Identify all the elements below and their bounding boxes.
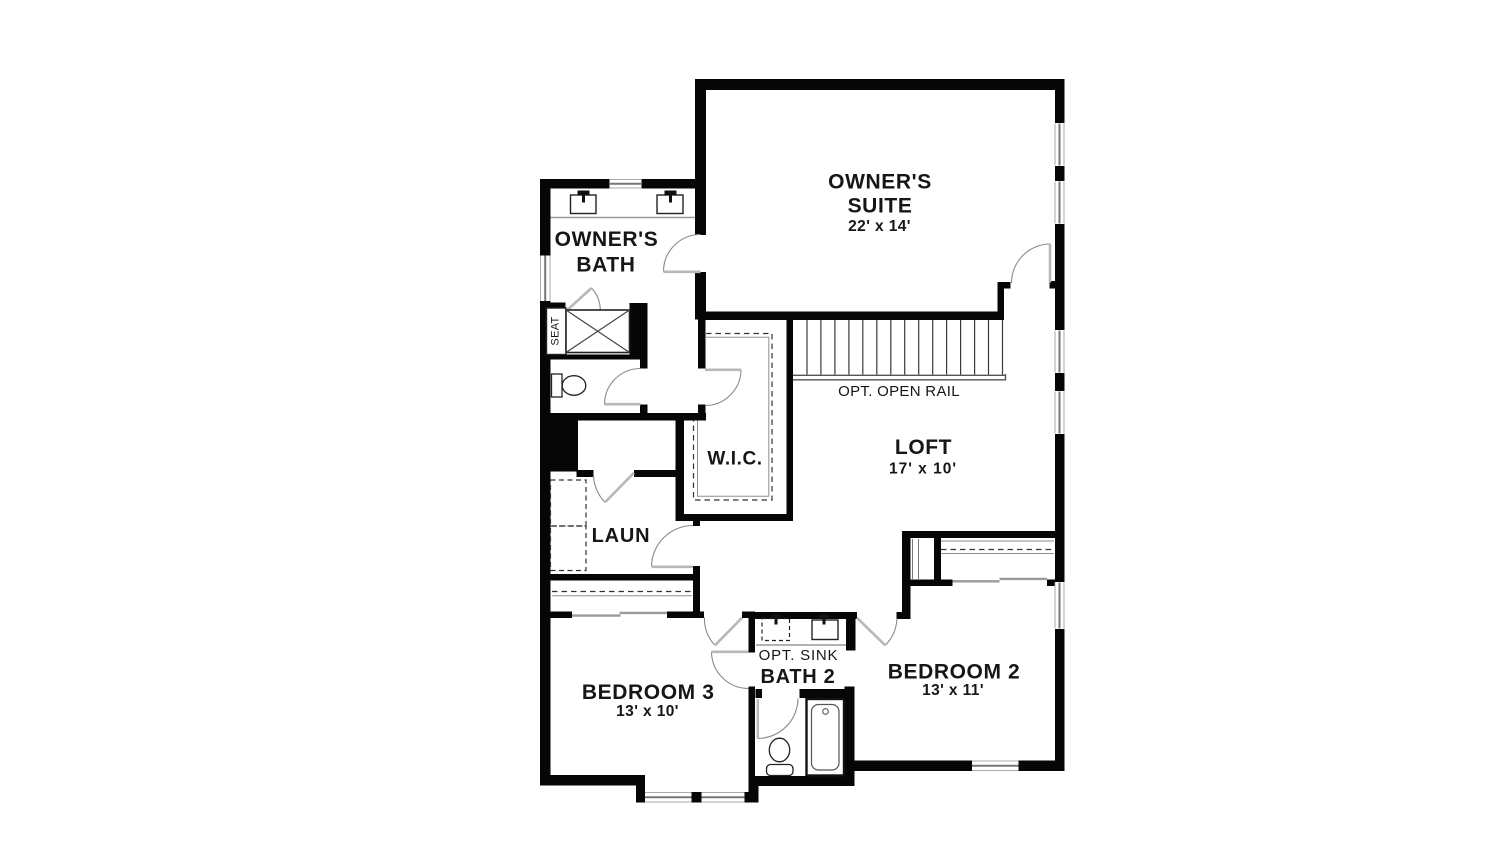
svg-text:OPT. SINK: OPT. SINK [759, 647, 839, 664]
svg-text:OPT. OPEN RAIL: OPT. OPEN RAIL [838, 383, 960, 400]
svg-text:17' x 10': 17' x 10' [889, 461, 957, 478]
svg-text:W.I.C.: W.I.C. [707, 449, 762, 470]
svg-text:13' x 11': 13' x 11' [922, 682, 984, 699]
svg-text:BATH 2: BATH 2 [761, 666, 836, 688]
svg-text:SEAT: SEAT [550, 316, 562, 345]
svg-text:LAUN: LAUN [592, 525, 651, 547]
svg-text:SUITE: SUITE [848, 195, 913, 218]
svg-text:13' x 10': 13' x 10' [616, 703, 679, 720]
svg-text:BATH: BATH [576, 254, 635, 277]
svg-text:22' x 14': 22' x 14' [848, 218, 911, 235]
svg-text:BEDROOM 3: BEDROOM 3 [582, 681, 715, 704]
svg-text:OWNER'S: OWNER'S [828, 171, 932, 194]
svg-text:BEDROOM 2: BEDROOM 2 [888, 661, 1021, 684]
svg-text:OWNER'S: OWNER'S [555, 228, 659, 251]
svg-text:LOFT: LOFT [895, 436, 952, 459]
